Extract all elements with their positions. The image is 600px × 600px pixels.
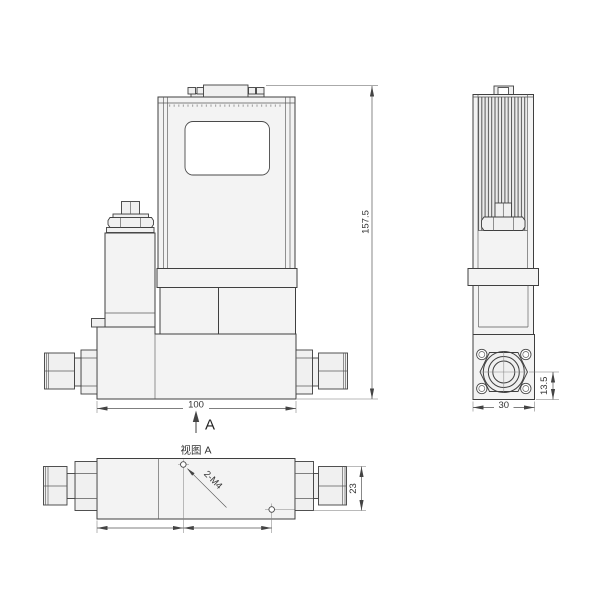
connector-side-inner <box>498 88 509 95</box>
tapped-hole <box>181 462 187 468</box>
port-flange-face <box>477 349 531 393</box>
bolt-hole <box>477 349 487 359</box>
valve-hex-side <box>482 217 526 231</box>
connector-screw-post <box>249 88 256 95</box>
dimension-hole-positions <box>97 521 272 534</box>
fitting-neck <box>314 474 319 499</box>
dsub-connector-body <box>204 85 249 97</box>
fitting-neck <box>75 358 82 386</box>
housing-lower-band <box>157 269 297 288</box>
bolt-hole <box>521 349 531 359</box>
engineering-drawing-canvas: 157.5 100 A <box>0 0 600 600</box>
base-left-tab <box>92 319 106 328</box>
base-manifold <box>97 327 296 399</box>
electrical-connector-front <box>188 85 264 97</box>
inlet-fitting-front <box>45 350 98 394</box>
dim-port-offset-label: 13.5 <box>539 377 550 396</box>
dim-fitting-width-label: 23 <box>348 483 359 494</box>
valve-hex-nut <box>108 218 154 228</box>
bolt-hole <box>521 383 531 393</box>
fitting-hex <box>295 462 314 511</box>
fitting-neck <box>313 358 319 386</box>
electrical-connector-side <box>494 86 514 95</box>
view-direction-arrow: A <box>193 411 215 434</box>
main-body-front <box>158 97 295 269</box>
sensor-block-right <box>219 288 296 335</box>
tapped-hole <box>269 507 275 513</box>
dimension-width: 100 <box>97 400 296 414</box>
valve-top-plate <box>107 228 155 233</box>
display-window <box>185 122 270 176</box>
fitting-hex <box>75 462 97 511</box>
dim-width-label: 100 <box>188 400 204 411</box>
connector-screw-post <box>257 88 265 95</box>
bottom-view-a: 视图 A 2-M4 <box>44 444 367 534</box>
bolt-hole <box>477 383 487 393</box>
sensor-block-left <box>160 288 219 335</box>
flow-controller-drawing: 157.5 100 A <box>0 0 600 600</box>
base-bottom-face <box>97 459 295 520</box>
connector-screw-post <box>188 88 196 95</box>
valve-actuator-front <box>105 202 155 328</box>
outlet-fitting-bottom <box>295 462 347 511</box>
outlet-fitting-front <box>296 350 348 394</box>
fitting-neck <box>67 474 75 499</box>
fitting-hex <box>296 350 313 394</box>
dim-depth-label: 30 <box>499 400 510 411</box>
view-arrow-label: A <box>205 417 215 434</box>
valve-washer <box>113 214 149 218</box>
front-view: 157.5 100 A <box>45 85 379 434</box>
connector-screw-post <box>197 88 204 95</box>
band-side <box>468 269 539 286</box>
bottom-view-title: 视图 A <box>181 444 212 457</box>
side-view: 13.5 30 <box>468 86 559 412</box>
fitting-hex <box>81 350 97 394</box>
dim-height-label: 157.5 <box>361 210 372 234</box>
inlet-fitting-bottom <box>44 462 98 511</box>
dimension-depth: 30 <box>473 400 535 412</box>
